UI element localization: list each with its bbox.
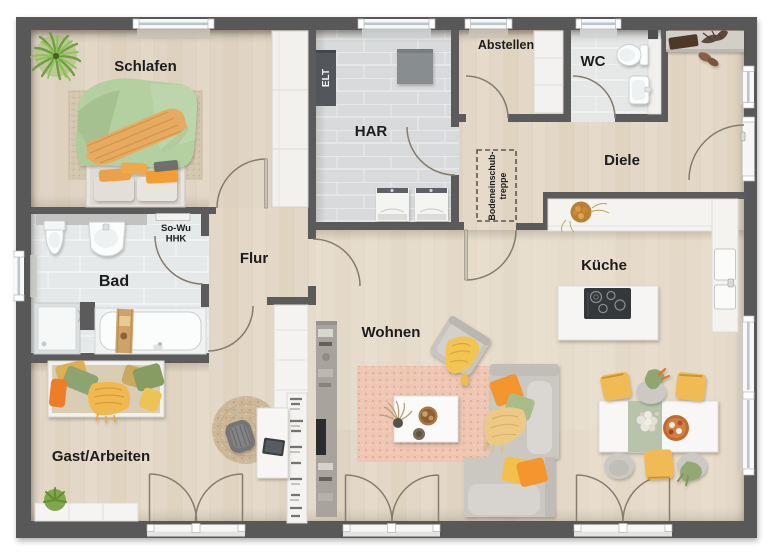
svg-text:Küche: Küche [581,257,627,274]
svg-text:treppe: treppe [498,172,508,199]
svg-text:ELT: ELT [321,69,332,87]
svg-text:So-Wu: So-Wu [161,223,191,234]
svg-text:Abstellen: Abstellen [478,38,534,52]
svg-text:Diele: Diele [604,152,640,169]
svg-text:Flur: Flur [240,250,268,267]
svg-text:Schlafen: Schlafen [114,58,177,75]
svg-text:HAR: HAR [355,123,388,140]
svg-text:Wohnen: Wohnen [362,324,421,341]
svg-text:HHK: HHK [166,234,187,245]
svg-text:Bodeneinschub-: Bodeneinschub- [487,151,497,220]
svg-text:WC: WC [581,53,606,70]
svg-text:Gast/Arbeiten: Gast/Arbeiten [52,448,150,465]
svg-text:Bad: Bad [99,273,129,290]
